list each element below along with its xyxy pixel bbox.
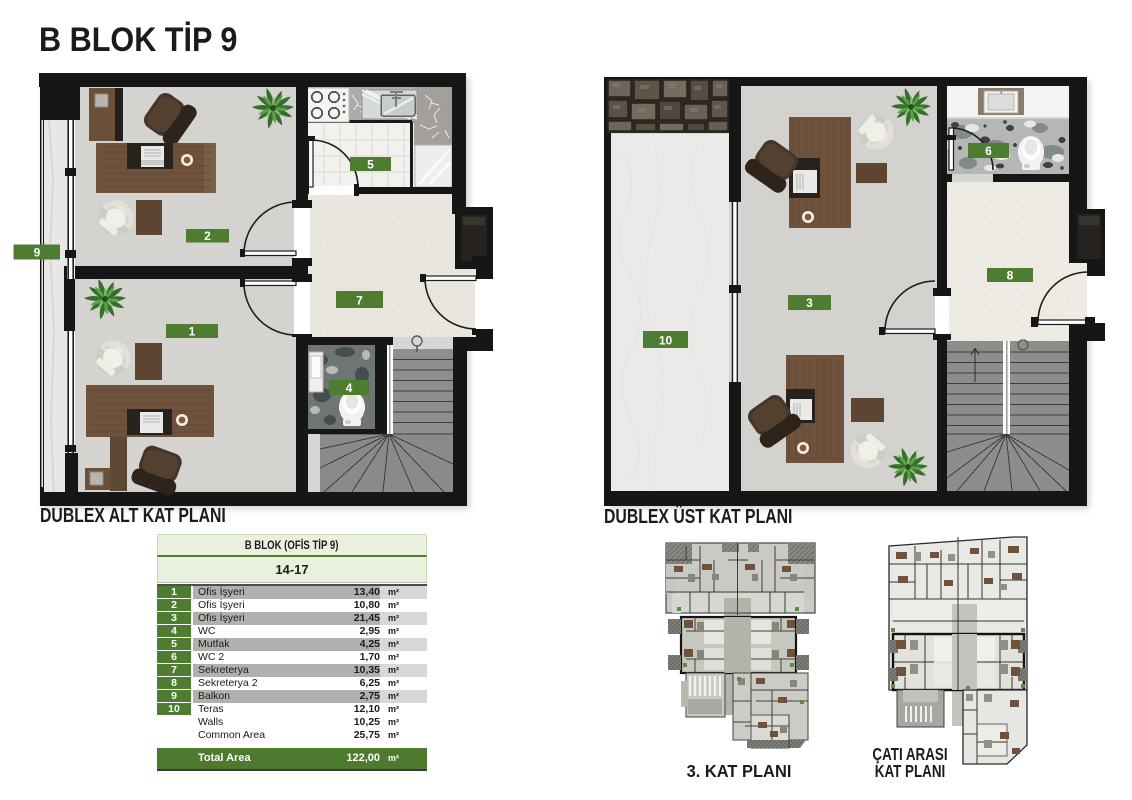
svg-text:9: 9: [34, 246, 41, 260]
svg-text:4: 4: [346, 381, 353, 395]
svg-text:2: 2: [204, 229, 211, 243]
svg-text:8: 8: [1007, 269, 1014, 283]
svg-text:1: 1: [189, 325, 196, 339]
svg-text:3: 3: [806, 296, 813, 310]
svg-text:6: 6: [985, 144, 992, 158]
svg-text:10: 10: [659, 334, 673, 348]
svg-text:7: 7: [356, 294, 363, 308]
svg-text:5: 5: [367, 158, 374, 172]
